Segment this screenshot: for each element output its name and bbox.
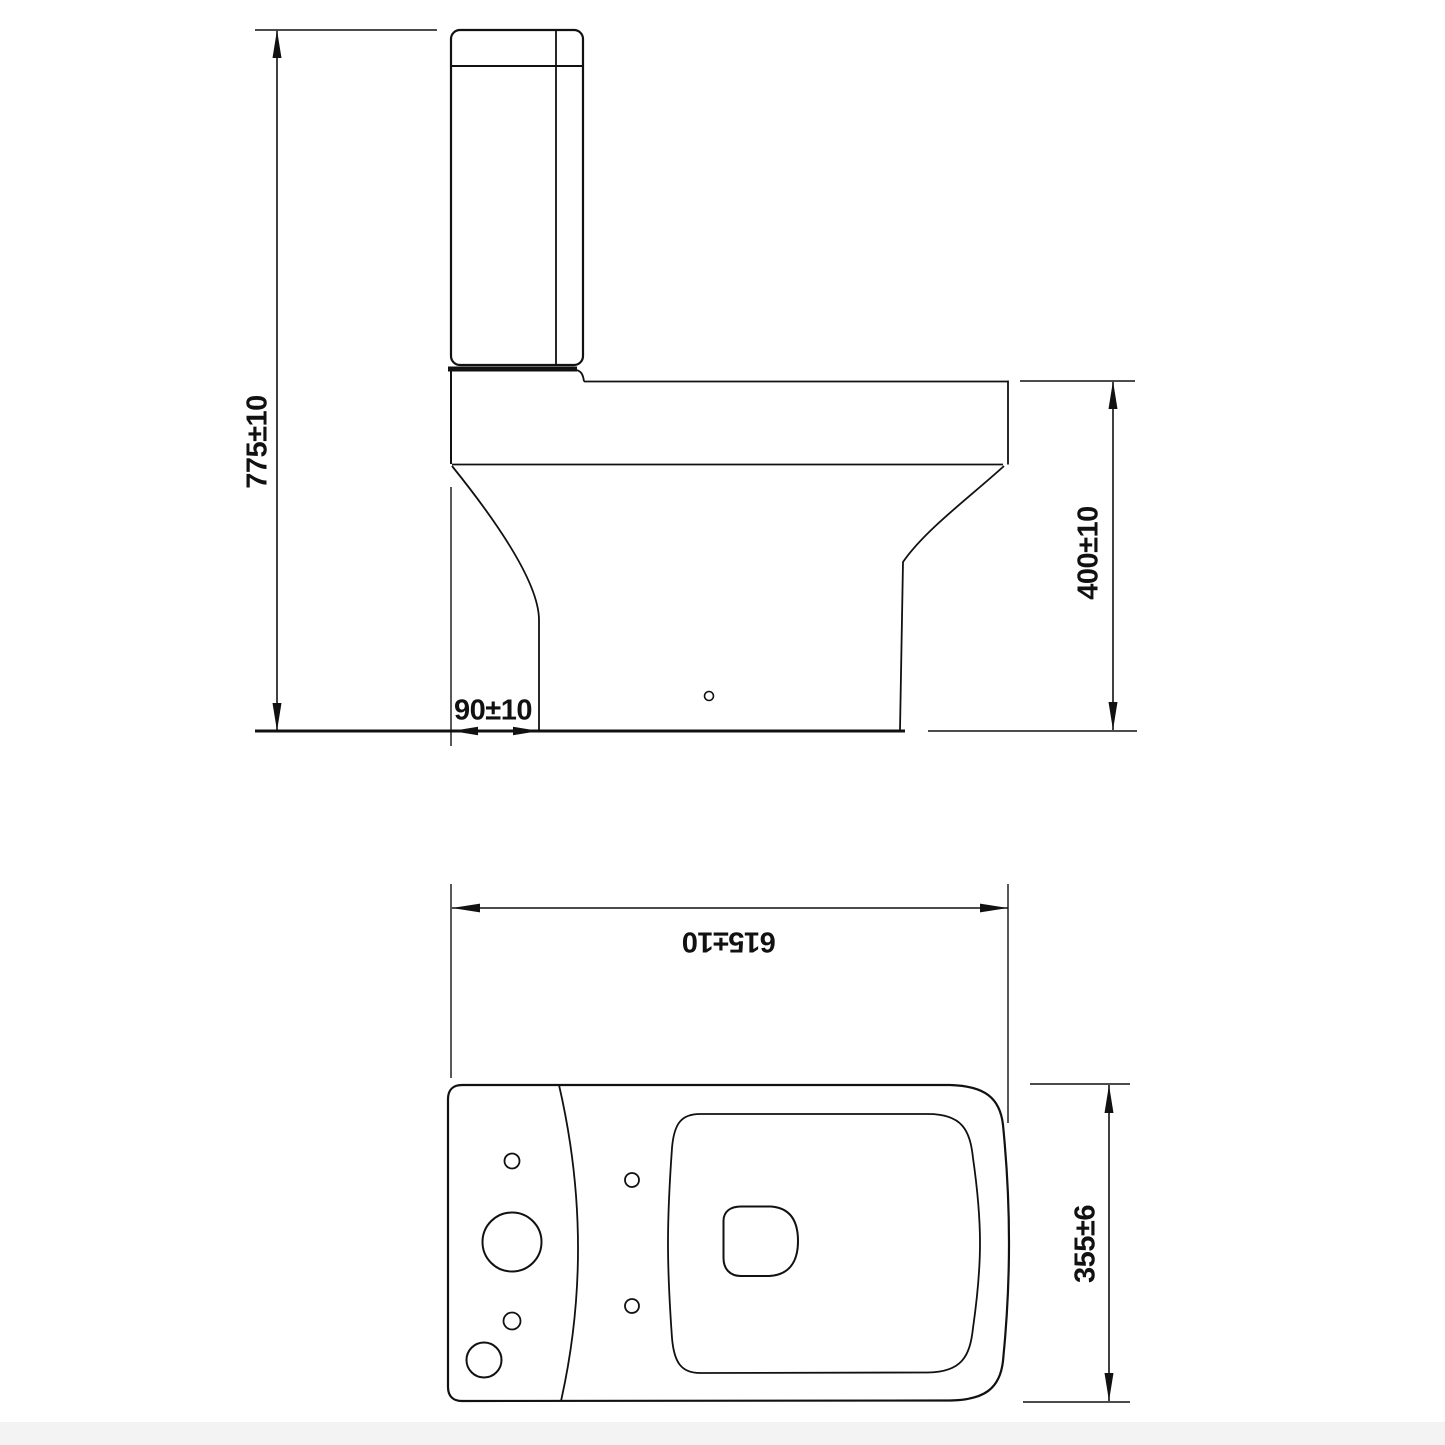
arrowhead-down [1105,1373,1114,1401]
side-view-cistern [451,30,583,365]
overall-width-dimension-label: 355±6 [1072,1205,1101,1283]
setback-dimension-label: 90±10 [454,697,532,726]
arrowhead-left [452,727,478,735]
overall-depth-dimension-label: 615±10 [682,927,776,956]
page-bottom-strip [0,1422,1445,1445]
arrowhead-left [452,904,480,913]
technical-drawing-canvas: 775±10 400±10 90±10 615±10 355±6 [0,0,1445,1445]
side-view-dimension-lines [255,30,1137,746]
drawing-linework [0,0,1445,1445]
seat-fixing-hole-top [625,1173,639,1187]
arrowhead-up [1105,1085,1114,1113]
side-fixing-hole [705,692,714,701]
plan-view-seat-ring [668,1114,980,1373]
cistern-hole-small-bottom [504,1313,521,1330]
arrowhead-up [273,30,282,58]
arrowhead-up [1109,381,1118,409]
side-view-pan [448,369,1008,730]
cistern-separator-line [559,1085,578,1401]
overall-height-dimension-label: 775±10 [244,395,273,489]
plan-view-outline [448,1085,1009,1401]
seat-fixing-hole-bottom [625,1299,639,1313]
plan-view-dimension-lines [451,884,1130,1402]
cistern-hole-corner [467,1343,502,1378]
plan-view-holes [467,1154,640,1378]
arrowhead-right [980,904,1008,913]
cistern-hole-large [483,1213,542,1272]
arrowhead-down [1109,702,1118,730]
arrowhead-right [513,727,539,735]
cistern-hole-small-top [505,1154,520,1169]
outlet-opening [724,1207,799,1277]
seat-height-dimension-label: 400±10 [1075,506,1104,600]
arrowhead-down [273,703,282,731]
